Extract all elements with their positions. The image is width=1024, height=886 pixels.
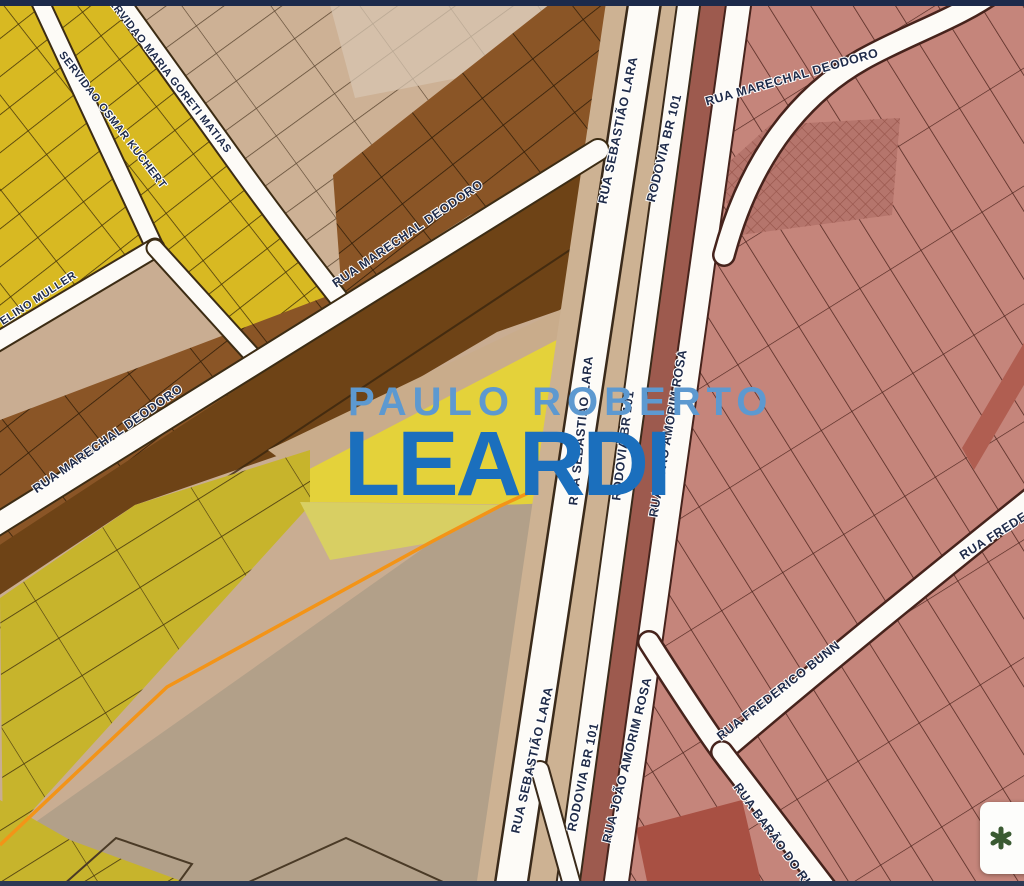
bottom-edge-strip [0, 881, 1024, 886]
top-edge-strip [0, 0, 1024, 6]
map-control-button[interactable] [980, 802, 1024, 874]
map-image: SERVIDAO MARIA GORETI MATIAS SERVIDAO OS… [0, 0, 1024, 886]
tree-icon [986, 823, 1016, 853]
map-canvas[interactable]: SERVIDAO MARIA GORETI MATIAS SERVIDAO OS… [0, 0, 1024, 886]
